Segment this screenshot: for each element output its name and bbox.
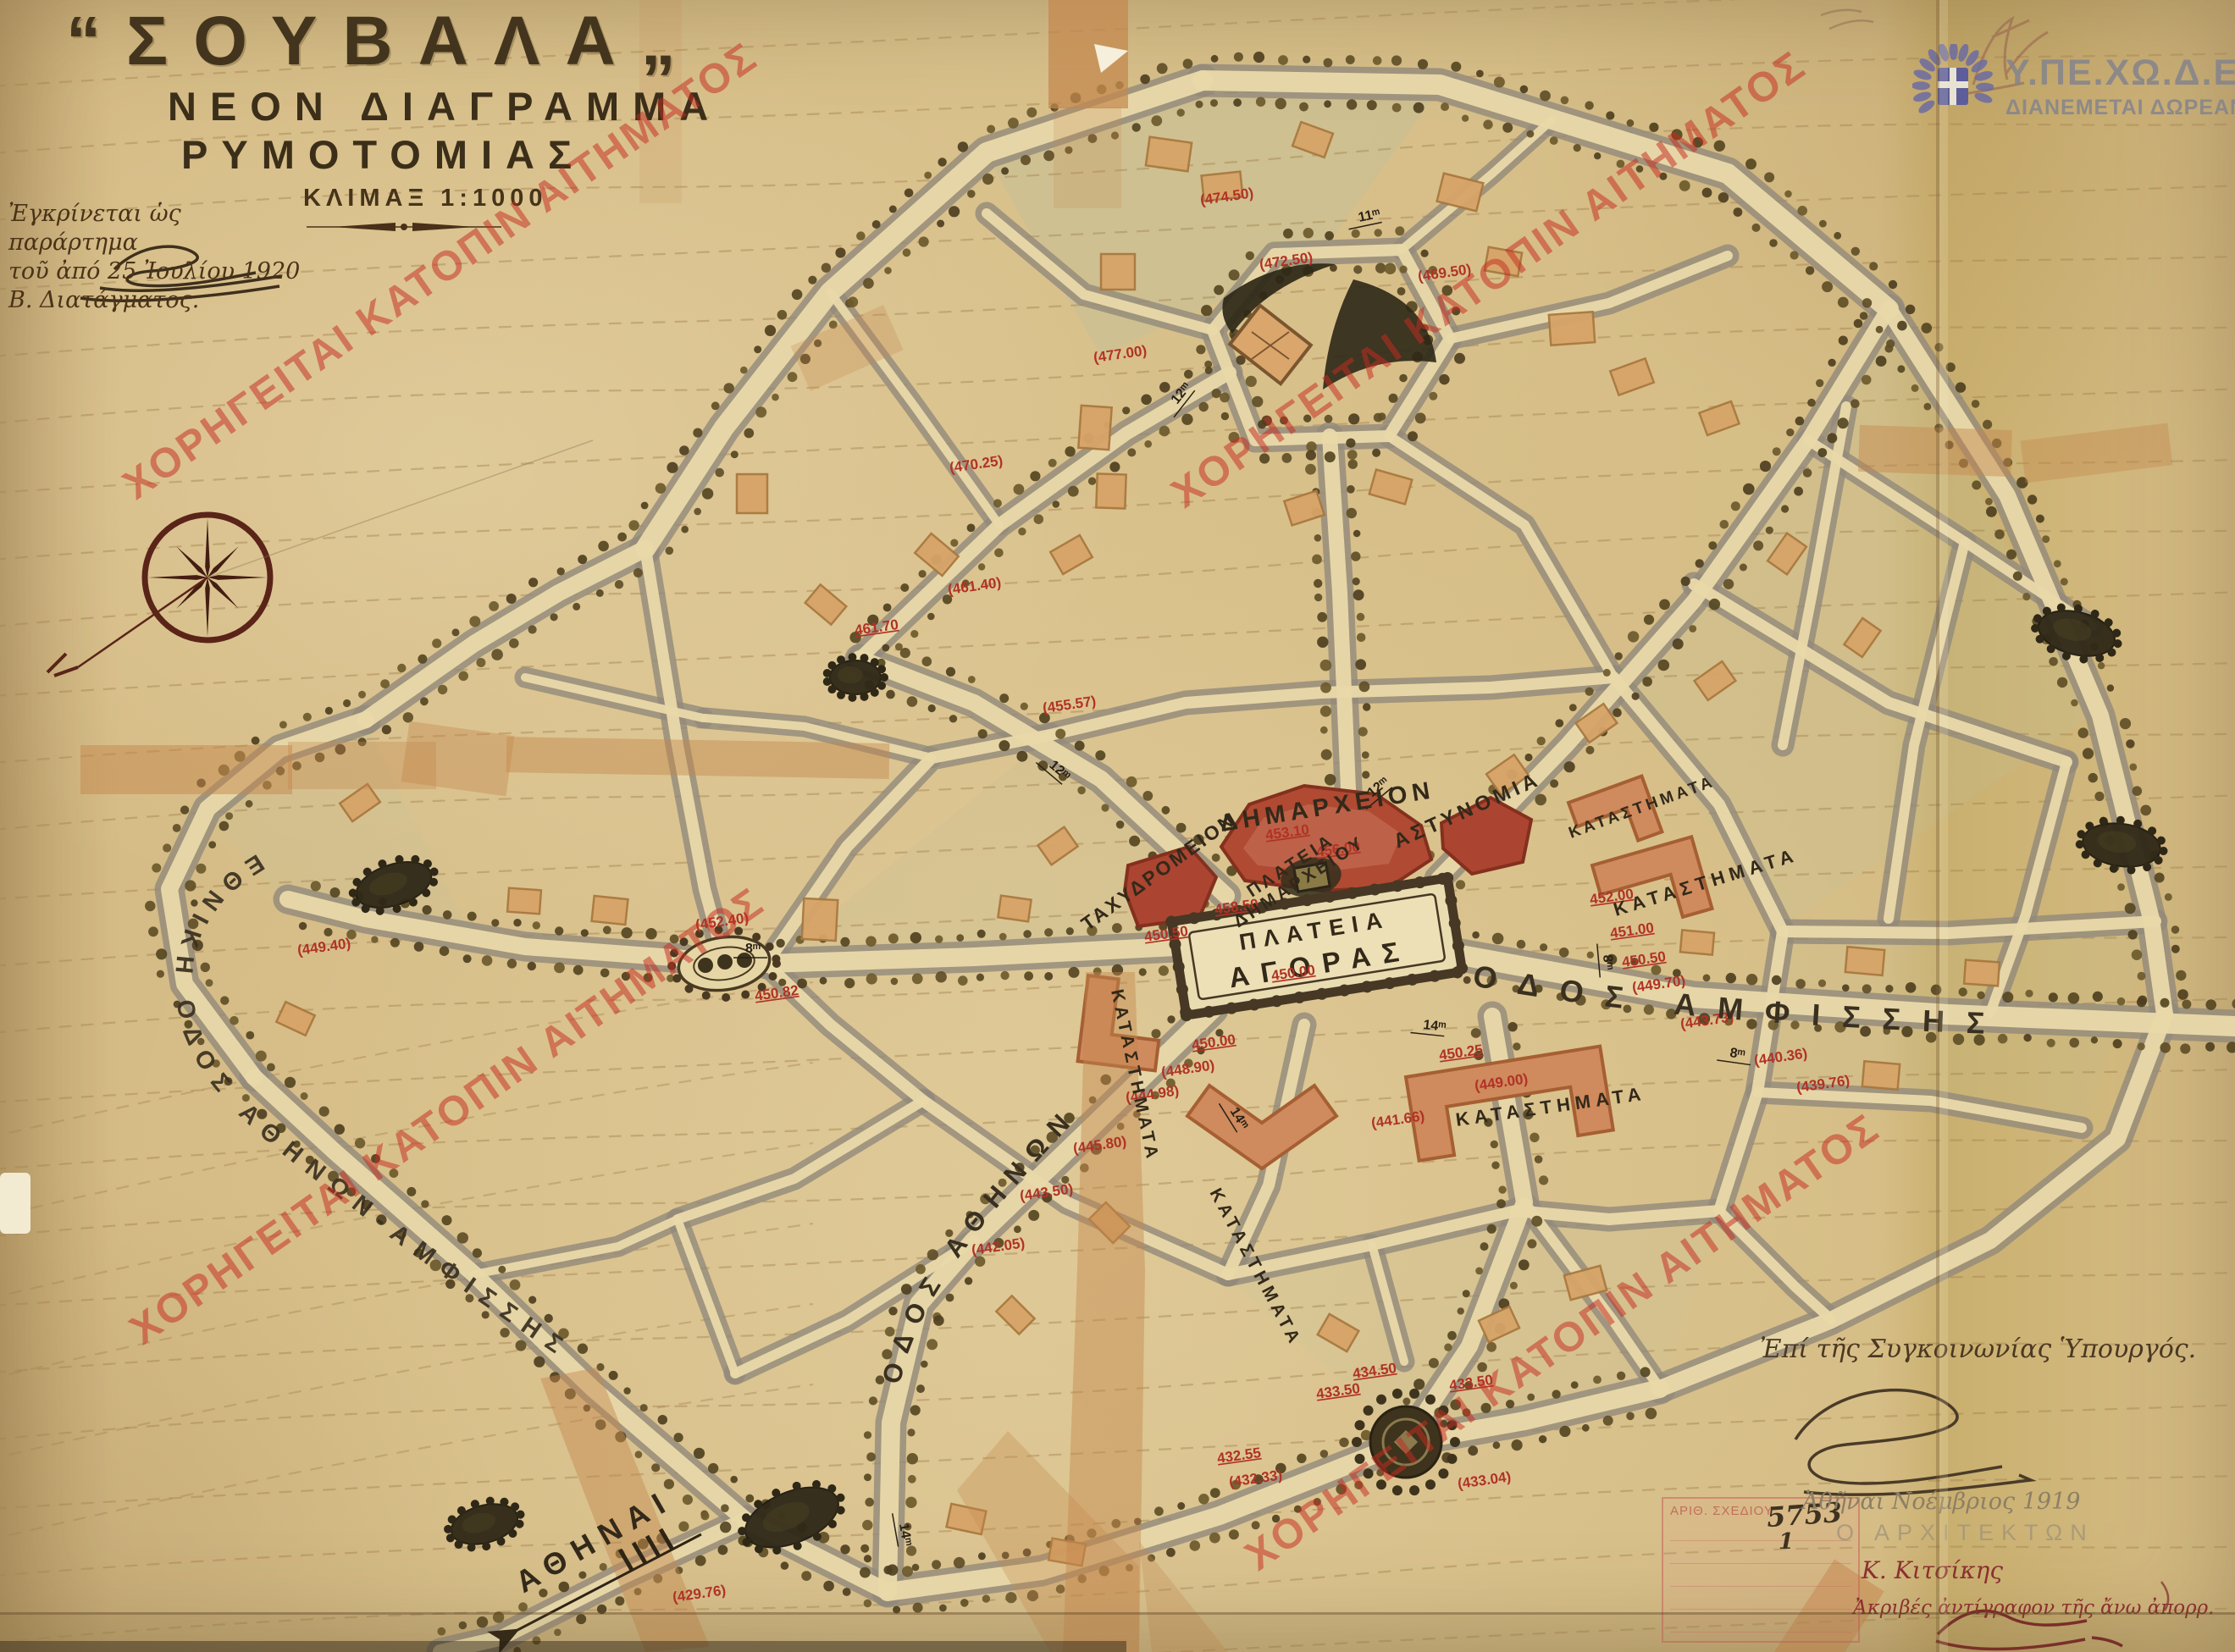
date-architect-block: Ἀθῆναι Νοέμβριος 1919 Ο ΑΡΧΙΤΕΚΤΩΝ <box>1802 1489 2094 1546</box>
ministry-logo-block: Υ.ΠΕ.ΧΩ.Δ.Ε. ΔΙΑΝΕΜΕΤΑΙ ΔΩΡΕΑΝ <box>1912 44 2235 129</box>
svg-text:450.25: 450.25 <box>1438 1041 1484 1064</box>
svg-text:432.55: 432.55 <box>1216 1445 1262 1467</box>
svg-text:(433.04): (433.04) <box>1457 1468 1512 1492</box>
stamp-plan-number-sub: 1 <box>1779 1529 1794 1555</box>
svg-text:433.50: 433.50 <box>1315 1380 1361 1402</box>
approval-line-1: Ἐγκρίνεται ὡς παράρτημα <box>8 200 313 257</box>
map-title: “ΣΟΥΒΑΛΑ„ <box>66 2 722 81</box>
scanned-map-sheet: ΠΛΑΤΕΙΑ ΑΓΟΡΑΣ <box>0 0 2235 1652</box>
svg-text:8ᵐ: 8ᵐ <box>745 942 761 956</box>
svg-text:8ᵐ: 8ᵐ <box>1600 954 1615 970</box>
approval-line-2: τοῦ ἀπό 25 Ἰουλίου 1920 <box>8 257 313 286</box>
paper-seam-highlight <box>1939 0 1948 1652</box>
svg-text:(449.40): (449.40) <box>296 935 351 959</box>
date-place: Ἀθῆναι Νοέμβριος 1919 <box>1802 1489 2094 1515</box>
ministry-name: Υ.ΠΕ.ΧΩ.Δ.Ε. <box>2005 52 2235 94</box>
paper-bottom-shadow <box>0 1641 1126 1652</box>
shops-bottom-left <box>1187 1086 1336 1169</box>
ministry-tagline: ΔΙΑΝΕΜΕΤΑΙ ΔΩΡΕΑΝ <box>2005 96 2235 120</box>
svg-text:11ᵐ: 11ᵐ <box>1357 207 1381 225</box>
minister-title: Ἐπί τῆς Συγκοινωνίας Ὑπουργός. <box>1760 1334 2158 1364</box>
approval-line-3: Β. Διατάγματος. <box>8 286 313 315</box>
svg-text:(455.57): (455.57) <box>1042 693 1097 716</box>
approval-note: Ἐγκρίνεται ὡς παράρτημα τοῦ ἀπό 25 Ἰουλί… <box>8 200 313 315</box>
architect-label: Ο ΑΡΧΙΤΕΚΤΩΝ <box>1836 1520 2094 1546</box>
architect-name: Κ. Κιτσίκης <box>1862 1556 2003 1584</box>
town-plan-map: ΠΛΑΤΕΙΑ ΑΓΟΡΑΣ <box>0 0 2235 1652</box>
greek-flag-emblem <box>1912 44 1994 129</box>
paper-tear-patch <box>0 1173 30 1234</box>
svg-text:451.00: 451.00 <box>1609 920 1655 942</box>
svg-text:14ᵐ: 14ᵐ <box>1423 1018 1447 1035</box>
svg-text:8ᵐ: 8ᵐ <box>1729 1046 1745 1062</box>
